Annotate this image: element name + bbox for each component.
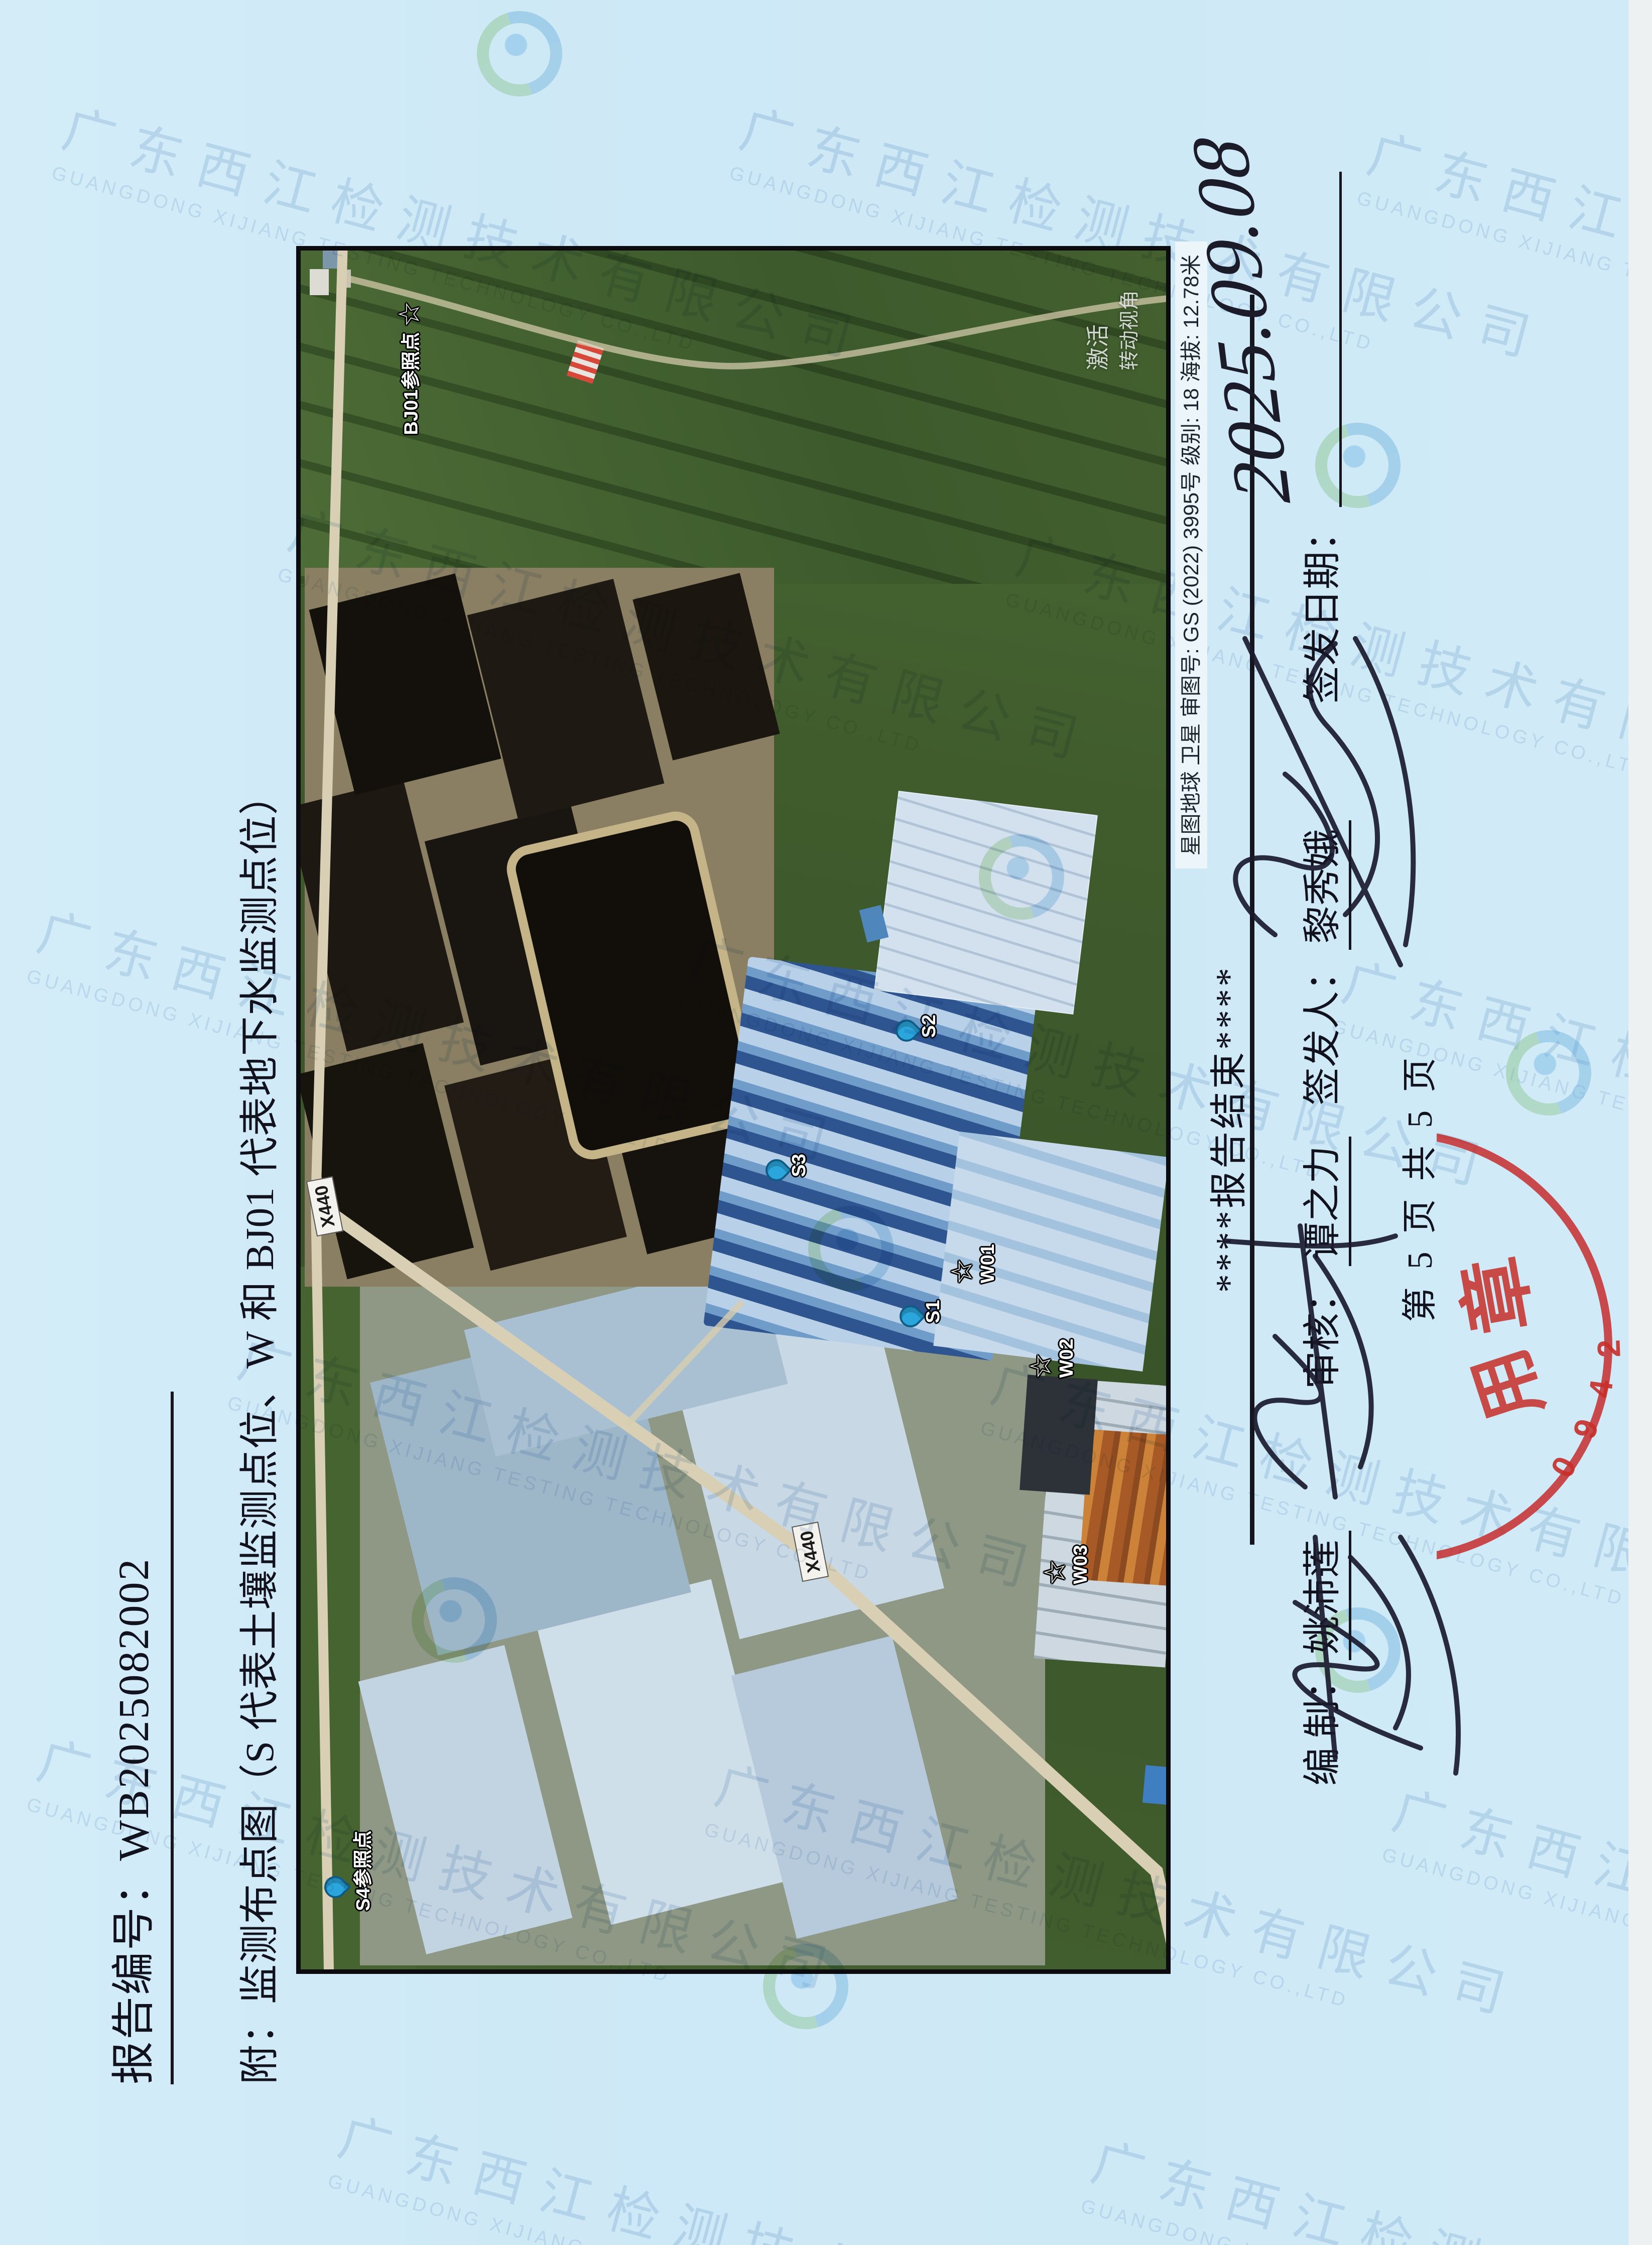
watermark-company-cn: 广东西江检测技术有限公司 <box>1085 2119 1652 2245</box>
star-marker-icon: ☆ <box>1026 1353 1055 1379</box>
pin-marker-icon <box>895 1301 926 1332</box>
map-marker-W02: ☆W02 <box>1026 1353 1055 1379</box>
map-marker-BJ01: ☆BJ01参照点 <box>395 301 424 327</box>
map-marker-label-S4: S4参照点 <box>347 1830 375 1911</box>
signature-yaopeilian <box>1295 1537 1458 1773</box>
map-marker-label-S1: S1 <box>923 1300 944 1323</box>
report-number-value: WB2025082002 <box>109 1557 158 1861</box>
map-marker-label-S2: S2 <box>919 1015 940 1038</box>
star-marker-icon: ☆ <box>947 1259 976 1285</box>
watermark-company-en: GUANGDONG XIJIANG TESTING TECHNOLOGY CO.… <box>1379 1844 1652 2080</box>
scanned-report-page: 广东西江检测技术有限公司GUANGDONG XIJIANG TESTING TE… <box>0 0 1652 2245</box>
map-roads <box>301 246 1171 1969</box>
star-marker-icon: ☆ <box>395 301 424 327</box>
map-marker-S3: S3 <box>766 1159 788 1181</box>
map-marker-label-W01: W01 <box>977 1244 999 1283</box>
attachment-title: 附：监测布点图（S 代表土壤监测点位、W 和 BJ01 代表地下水监测点位） <box>227 775 285 2084</box>
map-rotate-hint: 激活 转动视角 <box>1080 290 1142 370</box>
map-marker-S4: S4参照点 <box>324 1876 346 1898</box>
map-marker-label-S3: S3 <box>789 1154 810 1177</box>
monitoring-map: 激活 转动视角 S4参照点☆BJ01参照点S3S2S1☆W01☆W02☆W03X… <box>296 246 1171 1974</box>
watermark-company-text: 广东西江检测技术有限公司GUANGDONG XIJIANG TESTING TE… <box>1078 2119 1652 2245</box>
watermark-company-text: 广东西江检测技术有限公司GUANGDONG XIJIANG TESTING TE… <box>325 2094 1154 2245</box>
star-marker-icon: ☆ <box>1040 1559 1069 1585</box>
watermark-company-en: GUANGDONG XIJIANG TESTING TECHNOLOGY CO.… <box>1078 2196 1652 2245</box>
scan-edge-strip <box>1628 0 1652 2245</box>
report-number-line: 报告编号：WB2025082002 <box>98 1392 174 2084</box>
pin-marker-icon <box>891 1015 922 1046</box>
pin-marker-icon <box>320 1872 351 1903</box>
map-marker-S1: S1 <box>900 1305 922 1327</box>
map-marker-W01: ☆W01 <box>947 1259 976 1285</box>
watermark-company-cn: 广东西江检测技术有限公司 <box>332 2094 1155 2245</box>
map-hint-rotate-view: 转动视角 <box>1113 290 1142 370</box>
map-marker-S2: S2 <box>896 1020 918 1042</box>
watermark-company-en: GUANGDONG XIJIANG TESTING TECHNOLOGY CO.… <box>325 2171 1134 2245</box>
report-landscape-page: 广东西江检测技术有限公司GUANGDONG XIJIANG TESTING TE… <box>0 0 1652 2245</box>
signature-tanzhili <box>1225 1226 1395 1497</box>
red-seal-serial-digit: 2 <box>1590 1339 1627 1358</box>
map-marker-W03: ☆W03 <box>1040 1559 1069 1585</box>
map-marker-label-BJ01: BJ01参照点 <box>395 332 423 435</box>
map-marker-label-W03: W03 <box>1070 1545 1092 1584</box>
map-marker-label-W02: W02 <box>1056 1338 1078 1378</box>
watermark-company-logo-icon <box>462 0 577 111</box>
report-number-label: 报告编号： <box>109 1861 158 2084</box>
signature-lixiue <box>1235 639 1413 965</box>
map-hint-activate: 激活 <box>1080 290 1113 370</box>
pin-marker-icon <box>761 1155 792 1186</box>
